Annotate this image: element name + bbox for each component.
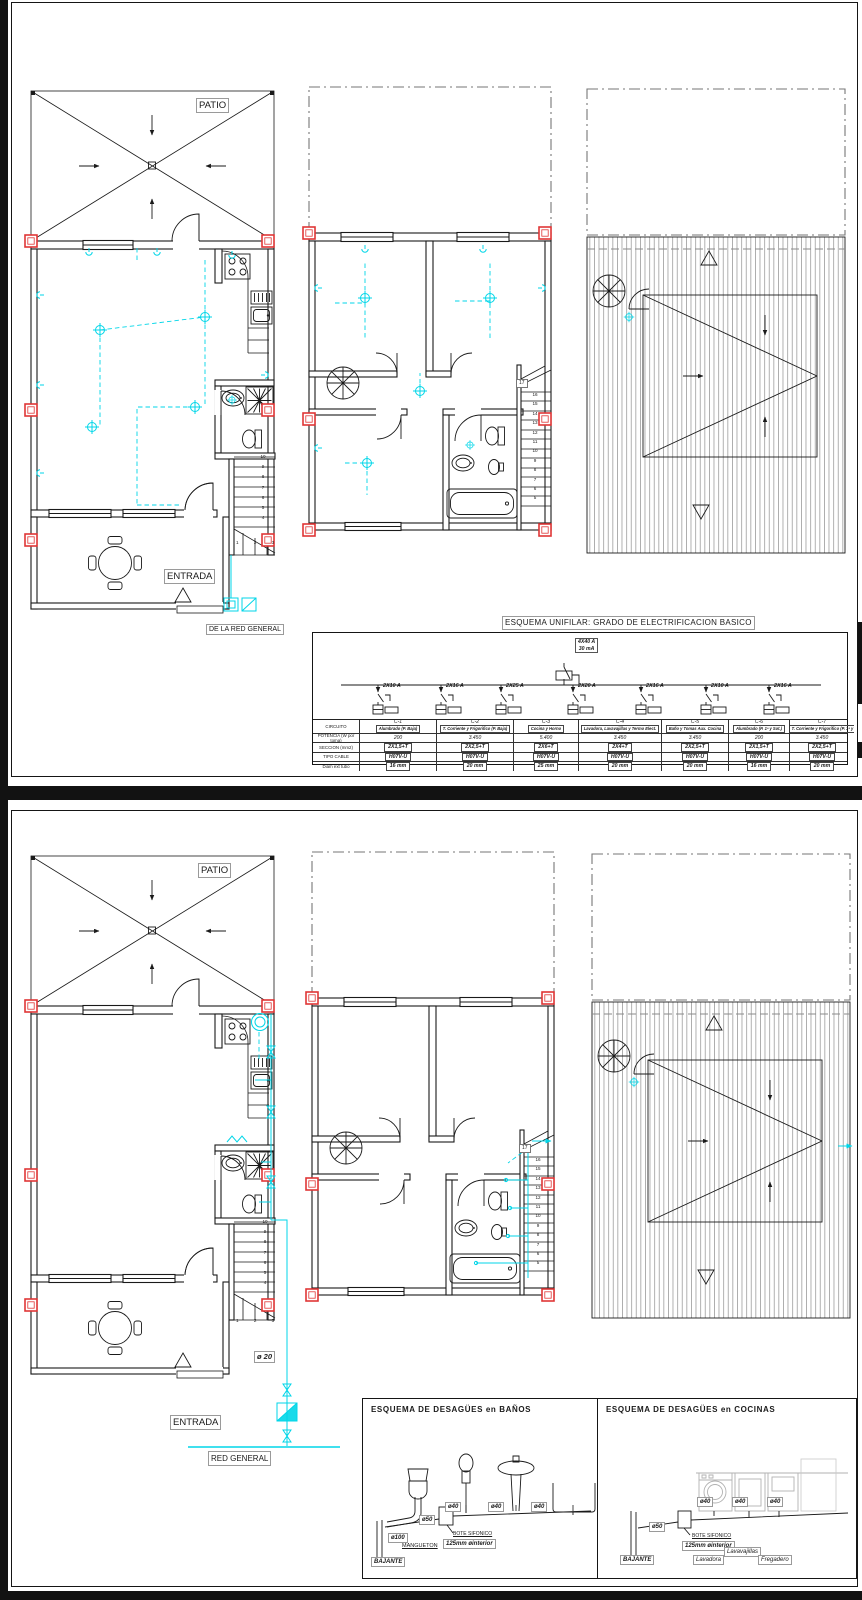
- circuit-cell: 3.450: [662, 734, 729, 742]
- circuit-cell: 2X1,5+T: [729, 743, 790, 751]
- kitchen-schematic-title: ESQUEMA DE DESAGÜES en COCINAS: [606, 1405, 775, 1414]
- d40-label: ø40: [732, 1497, 748, 1507]
- circuit-cell: 200: [729, 734, 790, 742]
- circuit-cell: 16 mm: [729, 762, 790, 770]
- circuit-cell: 2X1,5+T: [360, 743, 437, 751]
- row-label: POTENCIA (W por toma): [313, 734, 360, 742]
- circuit-cell: C-2T. Corriente y Frigorifico (P. Baja): [437, 720, 514, 733]
- sheet-divider-band: [0, 786, 862, 800]
- bath-drainage-schematic: ESQUEMA DE DESAGÜES en BAÑOS ø40 ø40 ø40…: [362, 1398, 599, 1579]
- bote-sifonico-label: BOTE SIFONICO: [690, 1533, 733, 1540]
- lavadora-label: Lavadora: [693, 1555, 724, 1565]
- breaker-symbol-icon: [491, 685, 527, 719]
- patio-label: PATIO: [196, 98, 229, 113]
- d40-label: ø40: [531, 1502, 547, 1512]
- cabinet-outline: [801, 1459, 836, 1511]
- stair-numbers-first: 16 15 14 13 12 11 10 9 8 7 6 5: [533, 1155, 543, 1268]
- ceiling-lamp-icon: [227, 395, 237, 405]
- d50-label: ø50: [419, 1515, 435, 1525]
- unifilar-title: ESQUEMA UNIFILAR: GRADO DE ELECTRIFICACI…: [502, 616, 755, 630]
- circuit-cell: H07V-U: [437, 753, 514, 761]
- circuit-cell: 3.450: [790, 734, 854, 742]
- circuit-cell: 20 mm: [579, 762, 662, 770]
- pedestal-sink-icon: [498, 1461, 534, 1475]
- circuit-cell: H07V-U: [514, 753, 579, 761]
- circuit-cell: C-7T. Corriente y Frigorifico (P. 1ª y S…: [790, 720, 854, 733]
- breaker-symbol-icon: [431, 685, 467, 719]
- circuit-cells: H07V-UH07V-UH07V-UH07V-UH07V-UH07V-UH07V…: [360, 753, 854, 761]
- circuit-cell: C-1Alumbrado (P. Baja): [360, 720, 437, 733]
- circuit-cell: 3.450: [579, 734, 662, 742]
- circuit-cell: 2X2,5+T: [790, 743, 854, 751]
- breaker-rating-label: 2X20 A: [578, 683, 596, 689]
- stair-numbers-first: 16 15 14 13 12 11 10 9 8 7 6 5: [530, 390, 540, 503]
- table-row-seccion: SECCION (mm2) 2X1,5+T2X2,5+T2X6+T2X4+T2X…: [313, 743, 847, 752]
- branch-breakers: 2X10 A 2X16 A 2X25 A 2X20 A 2X16 A 2X10 …: [313, 633, 847, 719]
- breaker-rating-label: 2X16 A: [446, 683, 464, 689]
- breaker-rating-label: 2X10 A: [711, 683, 729, 689]
- lavavajillas-label: Lavavajillas: [724, 1547, 761, 1557]
- breaker-rating-label: 2X25 A: [506, 683, 524, 689]
- plan-ground-floor-plumbing: [27, 850, 307, 1395]
- branch-breaker: 2X10 A: [696, 685, 732, 719]
- red-general-feed-label: DE LA RED GENERAL: [206, 624, 284, 635]
- breaker-symbol-icon: [631, 685, 667, 719]
- circuit-cell: H07V-U: [790, 753, 854, 761]
- circuit-table: CIRCUITO C-1Alumbrado (P. Baja)C-2T. Cor…: [313, 719, 847, 771]
- bajante-label: BAJANTE: [620, 1555, 654, 1565]
- d40-label: ø40: [697, 1497, 713, 1507]
- circuit-cells: 2003.4505.4003.4503.4502003.450: [360, 734, 854, 742]
- d40-label: ø40: [445, 1502, 461, 1512]
- plan-roof-electrical: [583, 85, 853, 570]
- row-label: TIPO CABLE: [313, 753, 360, 761]
- circuit-cell: 2X2,5+T: [662, 743, 729, 751]
- socket-icon: [315, 285, 322, 291]
- d50-label: ø50: [649, 1522, 665, 1532]
- circuit-cell: 5.400: [514, 734, 579, 742]
- socket-icon: [37, 470, 44, 476]
- circuit-cells: 16 mm20 mm25 mm20 mm20 mm16 mm20 mm: [360, 762, 854, 770]
- plan-ground-floor-electrical: [27, 85, 307, 630]
- circuit-cell: 20 mm: [437, 762, 514, 770]
- circuit-cell: C-5Baño y Tomas Aux. Cocina: [662, 720, 729, 733]
- ceiling-lamp-icon: [85, 420, 99, 434]
- page-bottom-black-band: [0, 1591, 862, 1600]
- table-row-potencia: POTENCIA (W por toma) 2003.4505.4003.450…: [313, 734, 847, 743]
- breaker-rating-label: 2X16 A: [646, 683, 664, 689]
- d40-label: ø40: [488, 1502, 504, 1512]
- circuit-cell: C-3Cocina y Horno: [514, 720, 579, 733]
- stair-top-number: 17: [519, 1144, 531, 1153]
- circuit-cell: 2X6+T: [514, 743, 579, 751]
- circuit-cell: 2X4+T: [579, 743, 662, 751]
- water-heater-icon: [252, 1014, 269, 1031]
- circuit-cells: 2X1,5+T2X2,5+T2X6+T2X4+T2X2,5+T2X1,5+T2X…: [360, 743, 854, 751]
- circuit-cell: 2X2,5+T: [437, 743, 514, 751]
- plan-roof-plumbing: [588, 850, 858, 1335]
- circuit-cell: 20 mm: [790, 762, 854, 770]
- ceiling-lamp-icon: [465, 440, 475, 450]
- stair-numbers-ground: 10 9 8 7 6 5 4: [260, 1217, 270, 1288]
- breaker-symbol-icon: [368, 685, 404, 719]
- row-label: CIRCUITO: [313, 720, 360, 733]
- electrical-wiring-overlay: [37, 245, 268, 611]
- circuit-cell: C-6Alumbrado (P. 1ª y Sot.): [729, 720, 790, 733]
- circuit-cell: 16 mm: [360, 762, 437, 770]
- bote-sifonico-icon: [678, 1511, 691, 1528]
- branch-breaker: 2X16 A: [631, 685, 667, 719]
- circuit-cell: 3.450: [437, 734, 514, 742]
- entrada-label: ENTRADA: [164, 569, 215, 584]
- pipe-diameter-label: ø 20: [254, 1351, 275, 1363]
- stair-numbers-ground: 10 9 8 7 6 5 4: [258, 452, 268, 523]
- table-row-circuito: CIRCUITO C-1Alumbrado (P. Baja)C-2T. Cor…: [313, 720, 847, 734]
- circuit-cell: H07V-U: [579, 753, 662, 761]
- wc-icon: [408, 1469, 428, 1499]
- bathtub-icon: [553, 1483, 595, 1515]
- circuit-cell: 20 mm: [662, 762, 729, 770]
- breaker-rating-label: 2X10 A: [383, 683, 401, 689]
- bath-schematic-drawing: [363, 1399, 598, 1578]
- bajante-label: BAJANTE: [371, 1557, 405, 1567]
- breaker-symbol-icon: [759, 685, 795, 719]
- plumbing-overlay: [227, 1014, 287, 1396]
- branch-breaker: 2X25 A: [491, 685, 527, 719]
- socket-icon: [538, 285, 545, 291]
- socket-icon: [261, 372, 268, 378]
- mangueton-label: MANGUETON: [400, 1543, 440, 1550]
- row-label: Diam ext tubo: [313, 762, 360, 770]
- breaker-rating-label: 2X16 A: [774, 683, 792, 689]
- branch-breaker: 2X16 A: [431, 685, 467, 719]
- bidet-icon: [459, 1454, 473, 1472]
- socket-icon: [37, 382, 44, 388]
- stair-top-number: 17: [516, 379, 528, 388]
- circuit-cell: H07V-U: [662, 753, 729, 761]
- plan-first-floor-plumbing: [308, 848, 558, 1328]
- pipe-zigzag: [227, 1136, 247, 1142]
- socket-icon: [362, 245, 368, 252]
- fregadero-label: Fregadero: [758, 1555, 792, 1565]
- branch-breaker: 2X20 A: [563, 685, 599, 719]
- d40-label: ø40: [767, 1497, 783, 1507]
- circuit-cell: 200: [360, 734, 437, 742]
- stair-numbers-ground-bottom: 1 2 3: [236, 1318, 274, 1323]
- page-left-black-strip: [0, 0, 8, 1600]
- bath-schematic-title: ESQUEMA DE DESAGÜES en BAÑOS: [371, 1405, 531, 1414]
- socket-icon: [315, 445, 322, 451]
- kitchen-drainage-schematic: ESQUEMA DE DESAGÜES en COCINAS ø40 ø40 ø…: [597, 1398, 857, 1579]
- cad-drawing-page: PATIO ENTRADA DE LA RED GENERAL 10 9 8 7…: [0, 0, 862, 1600]
- circuit-cell: 25 mm: [514, 762, 579, 770]
- entrada-label: ENTRADA: [170, 1415, 221, 1430]
- branch-breaker: 2X16 A: [759, 685, 795, 719]
- patio-label: PATIO: [198, 863, 231, 878]
- red-general-label: RED GENERAL: [208, 1451, 271, 1466]
- row-label: SECCION (mm2): [313, 743, 360, 751]
- stair-numbers-ground-bottom: 1 2 3: [236, 540, 274, 545]
- branch-breaker: 2X10 A: [368, 685, 404, 719]
- circuit-cell: H07V-U: [729, 753, 790, 761]
- socket-icon: [480, 245, 486, 252]
- socket-icon: [37, 292, 44, 298]
- bote-diameter-label: 125mm øinterior: [443, 1539, 496, 1549]
- circuit-cell: C-4Lavadora, Lavavajillas y Termo Elect.: [579, 720, 662, 733]
- unifilar-diagram: 4X40 A 30 mA 2X10 A 2X16 A 2X25 A 2X20 A…: [312, 632, 848, 765]
- table-row-cable: TIPO CABLE H07V-UH07V-UH07V-UH07V-UH07V-…: [313, 753, 847, 762]
- table-row-diametro: Diam ext tubo 16 mm20 mm25 mm20 mm20 mm1…: [313, 762, 847, 770]
- circuit-cells: C-1Alumbrado (P. Baja)C-2T. Corriente y …: [360, 720, 854, 733]
- plan-first-floor-electrical: [305, 83, 555, 563]
- breaker-symbol-icon: [696, 685, 732, 719]
- d100-label: ø100: [388, 1533, 408, 1543]
- circuit-cell: H07V-U: [360, 753, 437, 761]
- bote-sifonico-label: BOTE SIFONICO: [451, 1531, 494, 1538]
- breaker-symbol-icon: [563, 685, 599, 719]
